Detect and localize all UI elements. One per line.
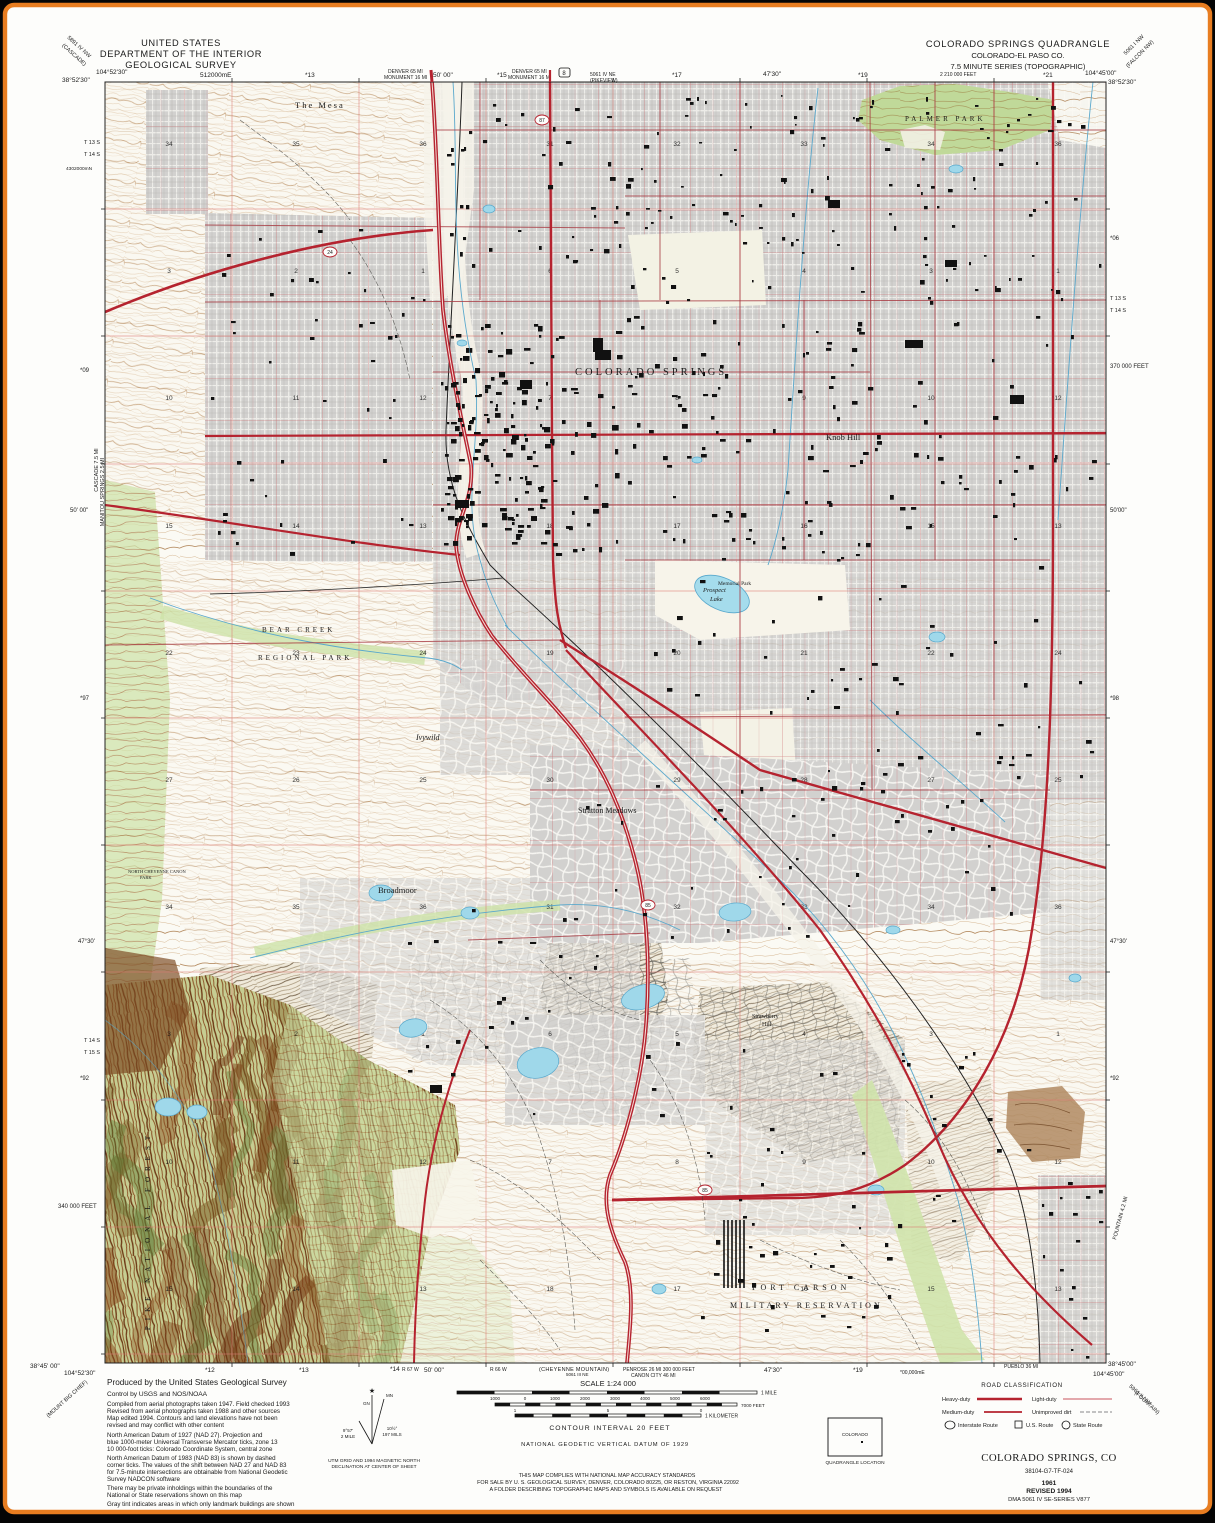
- svg-text:Lake: Lake: [709, 596, 723, 603]
- svg-text:COLORADO: COLORADO: [842, 1432, 869, 1437]
- svg-text:NATIONAL GEODETIC VERTICAL DAT: NATIONAL GEODETIC VERTICAL DATUM OF 1929: [521, 1442, 689, 1448]
- svg-text:9°57': 9°57': [343, 1428, 353, 1433]
- svg-text:512000mE: 512000mE: [200, 72, 232, 79]
- svg-text:Unimproved dirt: Unimproved dirt: [1032, 1410, 1072, 1416]
- svg-text:T 14 S: T 14 S: [84, 152, 100, 158]
- svg-text:21: 21: [800, 650, 808, 657]
- svg-text:PARK: PARK: [140, 875, 152, 880]
- svg-text:30: 30: [546, 777, 554, 784]
- svg-text:17: 17: [673, 1286, 681, 1293]
- svg-text:3: 3: [929, 1031, 933, 1038]
- svg-text:4: 4: [802, 268, 806, 275]
- svg-text:for 7.5-minute intersections a: for 7.5-minute intersections are obtaina…: [107, 1469, 288, 1476]
- svg-text:31: 31: [546, 904, 554, 911]
- svg-text:27: 27: [927, 777, 935, 784]
- svg-text:2 210 000 FEET: 2 210 000 FEET: [940, 72, 976, 78]
- svg-text:36: 36: [1054, 904, 1062, 911]
- svg-text:4: 4: [802, 1031, 806, 1038]
- svg-text:NORTH CHEYENNE CANON: NORTH CHEYENNE CANON: [128, 869, 186, 874]
- svg-text:1 MILE: 1 MILE: [761, 1391, 778, 1397]
- svg-text:12: 12: [1054, 1159, 1062, 1166]
- svg-text:*14: *14: [390, 1366, 400, 1373]
- svg-text:North American Datum of 1983 (: North American Datum of 1983 (NAD 83) is…: [107, 1455, 276, 1462]
- svg-text:5000: 5000: [670, 1396, 681, 1401]
- svg-text:North American Datum of 1927 (: North American Datum of 1927 (NAD 27). P…: [107, 1432, 263, 1439]
- svg-text:38°52'30": 38°52'30": [62, 76, 91, 84]
- svg-text:Heavy-duty: Heavy-duty: [942, 1397, 970, 1403]
- svg-text:Broadmoor: Broadmoor: [378, 885, 417, 895]
- svg-text:13: 13: [419, 523, 427, 530]
- svg-text:22: 22: [165, 650, 173, 657]
- svg-text:T 13 S: T 13 S: [1110, 296, 1126, 302]
- svg-text:38°52'30": 38°52'30": [1108, 78, 1137, 86]
- svg-text:10: 10: [165, 1159, 173, 1166]
- svg-text:34: 34: [927, 904, 935, 911]
- svg-text:104°45'00": 104°45'00": [1085, 69, 1117, 77]
- svg-text:24: 24: [327, 250, 333, 256]
- svg-text:PIKE NATIONAL FOREST: PIKE NATIONAL FOREST: [144, 1130, 152, 1330]
- svg-text:THIS MAP COMPLIES WITH NATIONA: THIS MAP COMPLIES WITH NATIONAL MAP ACCU…: [519, 1473, 696, 1479]
- svg-text:17: 17: [673, 523, 681, 530]
- svg-text:1000: 1000: [550, 1396, 561, 1401]
- svg-text:32: 32: [673, 141, 681, 148]
- svg-text:10: 10: [165, 395, 173, 402]
- svg-text:Revised from aerial photograph: Revised from aerial photographs taken 19…: [107, 1408, 280, 1415]
- svg-text:Map edited 1994. Contours and: Map edited 1994. Contours and land eleva…: [107, 1415, 278, 1422]
- svg-text:24: 24: [419, 650, 427, 657]
- svg-text:26: 26: [292, 777, 300, 784]
- svg-text:50'00": 50'00": [1110, 508, 1127, 514]
- svg-text:Stratton Meadows: Stratton Meadows: [578, 806, 636, 815]
- svg-text:34: 34: [927, 141, 935, 148]
- svg-text:★: ★: [369, 1387, 375, 1395]
- svg-text:*13: *13: [299, 1367, 309, 1374]
- svg-text:104°52'30": 104°52'30": [96, 68, 128, 76]
- svg-text:Compiled from aerial photograp: Compiled from aerial photographs taken 1…: [107, 1401, 290, 1408]
- svg-text:*19: *19: [858, 72, 868, 79]
- svg-text:*13: *13: [305, 72, 315, 79]
- svg-text:DECLINATION AT CENTER OF SHEET: DECLINATION AT CENTER OF SHEET: [331, 1464, 416, 1470]
- svg-text:3000: 3000: [610, 1396, 621, 1401]
- svg-text:ROAD CLASSIFICATION: ROAD CLASSIFICATION: [981, 1382, 1062, 1389]
- svg-text:9: 9: [802, 1159, 806, 1166]
- svg-text:14: 14: [292, 523, 300, 530]
- svg-text:13: 13: [419, 1286, 427, 1293]
- svg-text:DEPARTMENT OF THE INTERIOR: DEPARTMENT OF THE INTERIOR: [100, 49, 262, 59]
- svg-text:MANITOU SPRINGS 2.5 MI: MANITOU SPRINGS 2.5 MI: [100, 457, 106, 526]
- svg-text:1: 1: [1056, 268, 1060, 275]
- svg-text:COLORADO SPRINGS QUADRANGLE: COLORADO SPRINGS QUADRANGLE: [926, 39, 1110, 49]
- svg-text:47'30": 47'30": [763, 71, 782, 78]
- svg-text:*06: *06: [1110, 236, 1120, 242]
- svg-text:MONUMENT 16 MI: MONUMENT 16 MI: [508, 75, 551, 81]
- svg-text:7.5 MINUTE SERIES (TOPOGRAPHIC: 7.5 MINUTE SERIES (TOPOGRAPHIC): [951, 62, 1086, 71]
- svg-text:Memorial Park: Memorial Park: [718, 581, 751, 587]
- svg-text:197 MILS: 197 MILS: [382, 1432, 401, 1437]
- svg-text:FORT CARSON: FORT CARSON: [752, 1283, 850, 1292]
- svg-text:1: 1: [421, 268, 425, 275]
- svg-text:COLORADO SPRINGS, CO: COLORADO SPRINGS, CO: [981, 1452, 1117, 1464]
- svg-text:PALMER PARK: PALMER PARK: [905, 115, 986, 123]
- svg-text:12: 12: [419, 1159, 427, 1166]
- svg-text:12: 12: [419, 395, 427, 402]
- svg-text:10: 10: [927, 1159, 935, 1166]
- svg-text:UTM GRID AND 1994 MAGNETIC NOR: UTM GRID AND 1994 MAGNETIC NORTH: [328, 1458, 420, 1464]
- svg-text:6: 6: [548, 1031, 552, 1038]
- svg-text:COLORADO SPRINGS: COLORADO SPRINGS: [575, 367, 727, 378]
- svg-text:85: 85: [702, 1188, 708, 1194]
- svg-text:2000: 2000: [580, 1396, 591, 1401]
- svg-text:T 14 S: T 14 S: [84, 1038, 100, 1044]
- svg-text:10 000-foot ticks: Colorado C: 10 000-foot ticks: Colorado Coordinate S…: [107, 1446, 273, 1453]
- svg-text:1: 1: [1056, 1031, 1060, 1038]
- svg-text:15: 15: [165, 1286, 173, 1293]
- svg-text:COLORADO-EL PASO CO.: COLORADO-EL PASO CO.: [971, 51, 1064, 60]
- svg-text:Survey NADCON software: Survey NADCON software: [107, 1476, 180, 1483]
- svg-text:1 KILOMETER: 1 KILOMETER: [705, 1414, 738, 1420]
- svg-text:R 67 W: R 67 W: [402, 1367, 419, 1373]
- svg-text:87: 87: [539, 118, 545, 124]
- svg-text:6000: 6000: [700, 1396, 711, 1401]
- svg-text:REGIONAL PARK: REGIONAL PARK: [258, 654, 352, 662]
- svg-text:32: 32: [673, 904, 681, 911]
- svg-text:A FOLDER DESCRIBING TOPOGRAPHI: A FOLDER DESCRIBING TOPOGRAPHIC MAPS AND…: [490, 1487, 724, 1493]
- svg-text:15: 15: [165, 523, 173, 530]
- svg-text:47°30': 47°30': [78, 939, 95, 945]
- svg-text:35: 35: [292, 141, 300, 148]
- svg-text:*98: *98: [1110, 696, 1120, 702]
- svg-text:QUADRANGLE LOCATION: QUADRANGLE LOCATION: [825, 1460, 885, 1466]
- svg-text:5: 5: [675, 268, 679, 275]
- svg-text:MILITARY RESERVATION: MILITARY RESERVATION: [730, 1301, 883, 1310]
- svg-text:370 000 FEET: 370 000 FEET: [1110, 364, 1149, 370]
- svg-text:5061 III NE: 5061 III NE: [566, 1372, 589, 1377]
- svg-text:340 000 FEET: 340 000 FEET: [58, 1204, 97, 1210]
- svg-text:MONUMENT 16 MI: MONUMENT 16 MI: [384, 75, 427, 81]
- svg-text:7000 FEET: 7000 FEET: [741, 1403, 765, 1408]
- svg-text:4302000mN: 4302000mN: [66, 166, 93, 172]
- svg-text:Prospect: Prospect: [702, 587, 726, 594]
- svg-text:*12: *12: [205, 1367, 215, 1374]
- svg-text:Produced by the United States: Produced by the United States Geological…: [107, 1378, 288, 1387]
- svg-text:2: 2: [294, 268, 298, 275]
- svg-text:85: 85: [645, 903, 651, 909]
- svg-text:25: 25: [1054, 777, 1062, 784]
- svg-text:11: 11: [293, 395, 300, 402]
- svg-text:*19: *19: [853, 1367, 863, 1374]
- svg-text:MN: MN: [386, 1393, 393, 1398]
- svg-text:Hill: Hill: [762, 1022, 772, 1028]
- svg-text:7: 7: [548, 1159, 552, 1166]
- svg-text:47'30": 47'30": [764, 1367, 783, 1374]
- svg-text:T 14 S: T 14 S: [1110, 308, 1126, 314]
- svg-text:R 66 W: R 66 W: [490, 1367, 507, 1373]
- svg-text:revised and may conflict with: revised and may conflict with other cont…: [107, 1422, 224, 1429]
- svg-text:10: 10: [927, 395, 935, 402]
- svg-text:*15: *15: [497, 72, 507, 79]
- svg-text:104°45'00": 104°45'00": [1093, 1370, 1125, 1378]
- svg-text:104°52'30": 104°52'30": [64, 1369, 96, 1377]
- svg-text:T 15 S: T 15 S: [84, 1050, 100, 1056]
- svg-text:12: 12: [1054, 395, 1062, 402]
- svg-text:13: 13: [1054, 1286, 1062, 1293]
- svg-text:4000: 4000: [640, 1396, 651, 1401]
- svg-text:47°30': 47°30': [1110, 939, 1127, 945]
- svg-text:Strawberry: Strawberry: [752, 1014, 779, 1020]
- svg-text:36: 36: [419, 141, 427, 148]
- svg-text:36: 36: [419, 904, 427, 911]
- svg-text:Medium-duty: Medium-duty: [942, 1410, 975, 1416]
- svg-text:18: 18: [546, 1286, 554, 1293]
- svg-text:11: 11: [293, 1159, 300, 1166]
- svg-text:14: 14: [292, 1286, 300, 1293]
- svg-text:GN: GN: [363, 1401, 370, 1406]
- svg-text:33: 33: [800, 141, 808, 148]
- svg-text:*92: *92: [80, 1076, 90, 1082]
- svg-text:*97: *97: [80, 696, 90, 702]
- svg-text:DMA 5061 IV SE-SERIES V877: DMA 5061 IV SE-SERIES V877: [1008, 1497, 1090, 1503]
- svg-text:25: 25: [419, 777, 427, 784]
- svg-text:19: 19: [546, 650, 554, 657]
- svg-text:Light-duty: Light-duty: [1032, 1397, 1057, 1403]
- svg-text:Interstate Route: Interstate Route: [958, 1423, 998, 1429]
- svg-text:34: 34: [165, 141, 173, 148]
- svg-text:*09: *09: [80, 368, 90, 374]
- svg-text:Ivywild: Ivywild: [415, 733, 441, 742]
- svg-text:(PIKEVIEW): (PIKEVIEW): [590, 78, 618, 84]
- svg-text:*00,000mE: *00,000mE: [900, 1370, 925, 1376]
- svg-text:There may be private inholding: There may be private inholdings within t…: [107, 1485, 273, 1492]
- svg-text:3: 3: [929, 268, 933, 275]
- svg-text:SCALE 1:24 000: SCALE 1:24 000: [580, 1379, 636, 1388]
- svg-text:35: 35: [292, 904, 300, 911]
- svg-text:50' 00": 50' 00": [70, 508, 88, 514]
- svg-text:1000: 1000: [490, 1396, 501, 1401]
- svg-text:National or State reservations: National or State reservations shown on …: [107, 1492, 242, 1499]
- svg-text:*21: *21: [1043, 72, 1053, 79]
- svg-text:U.S. Route: U.S. Route: [1026, 1423, 1053, 1429]
- svg-text:T 13 S: T 13 S: [84, 140, 100, 146]
- svg-text:Knob Hill: Knob Hill: [826, 432, 861, 442]
- svg-text:REVISED 1994: REVISED 1994: [1026, 1488, 1072, 1495]
- svg-text:CONTOUR INTERVAL 20 FEET: CONTOUR INTERVAL 20 FEET: [549, 1425, 670, 1432]
- svg-text:3: 3: [167, 1031, 171, 1038]
- svg-text:38°45' 00": 38°45' 00": [30, 1362, 60, 1370]
- svg-text:36: 36: [1054, 141, 1062, 148]
- svg-text:24: 24: [1054, 650, 1062, 657]
- svg-text:CANON CITY 46 MI: CANON CITY 46 MI: [631, 1373, 676, 1379]
- svg-text:PUEBLO 36 MI: PUEBLO 36 MI: [1004, 1364, 1038, 1370]
- svg-text:Control by USGS and NOS/NOAA: Control by USGS and NOS/NOAA: [107, 1391, 208, 1398]
- svg-text:The Mesa: The Mesa: [295, 100, 345, 110]
- svg-text:13: 13: [1054, 523, 1062, 530]
- svg-text:38°45'00": 38°45'00": [1108, 1360, 1137, 1368]
- svg-text:2: 2: [294, 1031, 298, 1038]
- svg-text:BEAR CREEK: BEAR CREEK: [262, 626, 335, 634]
- svg-text:15: 15: [927, 1286, 935, 1293]
- svg-text:50' 00": 50' 00": [424, 1367, 445, 1374]
- svg-text:38104-G7-TF-024: 38104-G7-TF-024: [1025, 1469, 1074, 1475]
- svg-text:Gray tint indicates areas in w: Gray tint indicates areas in which only …: [107, 1501, 295, 1508]
- svg-text:10½°: 10½°: [387, 1425, 398, 1431]
- svg-text:*92: *92: [1110, 1076, 1120, 1082]
- svg-text:GEOLOGICAL SURVEY: GEOLOGICAL SURVEY: [125, 60, 236, 70]
- svg-text:27: 27: [165, 777, 173, 784]
- svg-text:2 MILE: 2 MILE: [341, 1434, 355, 1439]
- svg-text:3: 3: [167, 268, 171, 275]
- svg-text:UNITED STATES: UNITED STATES: [141, 38, 221, 48]
- svg-text:State Route: State Route: [1073, 1423, 1103, 1429]
- svg-text:5: 5: [675, 1031, 679, 1038]
- svg-text:22: 22: [927, 650, 935, 657]
- svg-text:corner ticks. The values of th: corner ticks. The values of the shift be…: [107, 1462, 287, 1469]
- svg-text:*17: *17: [672, 72, 682, 79]
- svg-text:8: 8: [675, 1159, 679, 1166]
- svg-text:1961: 1961: [1042, 1480, 1057, 1487]
- svg-text:50' 00": 50' 00": [433, 72, 454, 79]
- svg-text:blue 1000-meter Universal Tran: blue 1000-meter Universal Transverse Mer…: [107, 1439, 278, 1446]
- svg-text:34: 34: [165, 904, 173, 911]
- svg-text:FOR SALE BY U. S. GEOLOGICAL S: FOR SALE BY U. S. GEOLOGICAL SURVEY, DEN…: [477, 1480, 739, 1486]
